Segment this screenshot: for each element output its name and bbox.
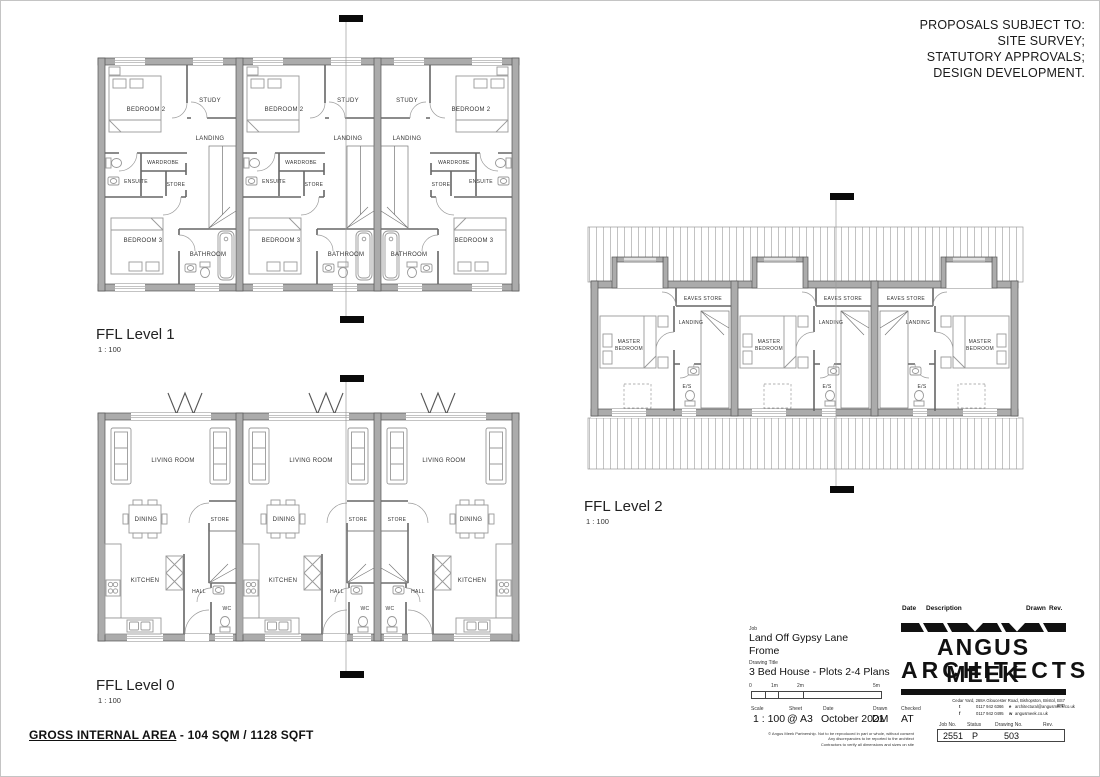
gross-internal-area: GROSS INTERNAL AREA - 104 SQM / 1128 SQF… bbox=[29, 728, 314, 742]
room-label: WC bbox=[223, 606, 232, 612]
proposals-notice: PROPOSALS SUBJECT TO: SITE SURVEY; STATU… bbox=[920, 17, 1085, 81]
scalebar-tick: 2m bbox=[797, 683, 804, 689]
email-label: e bbox=[1009, 704, 1011, 709]
drawing-sheet: PROPOSALS SUBJECT TO: SITE SURVEY; STATU… bbox=[0, 0, 1100, 777]
tel-value: 0117 942 6366 bbox=[976, 704, 1004, 709]
room-label: LANDING bbox=[906, 320, 930, 326]
notice-line: SITE SURVEY; bbox=[920, 33, 1085, 49]
room-label: LIVING ROOM bbox=[422, 458, 465, 464]
room-label: LANDING bbox=[679, 320, 703, 326]
date-label: Date bbox=[823, 706, 834, 712]
plan-title-level2: FFL Level 2 bbox=[584, 498, 663, 515]
room-label: WARDROBE bbox=[285, 160, 317, 166]
room-label: BEDROOM bbox=[615, 346, 643, 352]
fax-value: 0117 942 0495 bbox=[976, 711, 1004, 716]
room-label: BEDROOM 3 bbox=[455, 238, 494, 244]
room-label: STORE bbox=[305, 182, 324, 188]
room-label: BEDROOM 3 bbox=[124, 238, 163, 244]
room-label: EAVES STORE bbox=[684, 296, 722, 302]
room-label: EAVES STORE bbox=[887, 296, 925, 302]
room-label: WARDROBE bbox=[147, 160, 179, 166]
room-label: STORE bbox=[349, 517, 368, 523]
floor-plan-level-0: LIVING ROOM DINING STORE KITCHEN HALL WC… bbox=[94, 369, 528, 699]
scalebar-tick: 5m bbox=[873, 683, 880, 689]
room-label: HALL bbox=[192, 589, 206, 595]
room-label: KITCHEN bbox=[458, 578, 486, 584]
room-label: BEDROOM 2 bbox=[452, 107, 491, 113]
plan-title-level0: FFL Level 0 bbox=[96, 677, 175, 694]
room-label: LANDING bbox=[334, 136, 363, 142]
room-label: MASTER bbox=[758, 339, 781, 345]
email-value: architectural@angusmeek.co.uk bbox=[1015, 704, 1075, 709]
room-label: WARDROBE bbox=[438, 160, 470, 166]
room-label: DINING bbox=[273, 517, 296, 523]
break-symbols bbox=[168, 393, 455, 414]
firm-name-line2: ARCHITECTS bbox=[901, 657, 1066, 684]
checked-value: AT bbox=[901, 713, 914, 725]
scale-bar bbox=[751, 691, 882, 699]
floor-plan-level-2: EAVES STORE LANDING MASTER BEDROOM E/S E… bbox=[579, 189, 1031, 509]
drawn-value: DM bbox=[872, 713, 888, 725]
room-label: BEDROOM 2 bbox=[127, 107, 166, 113]
drawing-title: 3 Bed House - Plots 2-4 Plans bbox=[749, 666, 890, 678]
plan-scale-level1: 1 : 100 bbox=[98, 345, 121, 354]
job-no-label: Job No. bbox=[939, 722, 956, 728]
room-label: LANDING bbox=[819, 320, 843, 326]
scalebar-tick: 0 bbox=[749, 683, 752, 689]
room-label: BEDROOM bbox=[755, 346, 783, 352]
drawing-no-label: Drawing No. bbox=[995, 722, 1023, 728]
room-label: STUDY bbox=[337, 98, 359, 104]
room-label: E/S bbox=[683, 384, 692, 390]
sheet-label: Sheet bbox=[789, 706, 802, 712]
job-no-value: 2551 bbox=[943, 731, 963, 741]
room-label: BATHROOM bbox=[190, 252, 227, 258]
checked-label: Checked bbox=[901, 706, 921, 712]
room-label: BEDROOM 2 bbox=[265, 107, 304, 113]
plan-scale-level0: 1 : 100 bbox=[98, 696, 121, 705]
rev-header-rev: Rev. bbox=[1049, 605, 1062, 612]
room-label: STORE bbox=[388, 517, 407, 523]
logo-divider-bar bbox=[901, 689, 1066, 695]
room-label: LIVING ROOM bbox=[289, 458, 332, 464]
room-label: WC bbox=[386, 606, 395, 612]
room-label: HALL bbox=[411, 589, 425, 595]
room-label: STORE bbox=[167, 182, 186, 188]
room-label: BATHROOM bbox=[391, 252, 428, 258]
room-label: ENSUITE bbox=[124, 179, 148, 185]
drawn-label: Drawn bbox=[873, 706, 887, 712]
room-label: KITCHEN bbox=[269, 578, 297, 584]
copyright-line: Contractors to verify all dimensions and… bbox=[746, 742, 914, 747]
status-label: Status bbox=[967, 722, 981, 728]
room-label: WC bbox=[361, 606, 370, 612]
room-label: STUDY bbox=[199, 98, 221, 104]
fax-label: f bbox=[959, 711, 960, 716]
room-label: E/S bbox=[823, 384, 832, 390]
room-label: E/S bbox=[918, 384, 927, 390]
notice-line: STATUTORY APPROVALS; bbox=[920, 49, 1085, 65]
notice-line: DESIGN DEVELOPMENT. bbox=[920, 65, 1085, 81]
gross-area-value: 104 SQM / 1128 SQFT bbox=[188, 728, 314, 742]
room-label: EAVES STORE bbox=[824, 296, 862, 302]
room-label: MASTER bbox=[969, 339, 992, 345]
angus-meek-logo-mark bbox=[901, 623, 1066, 633]
web-label: w bbox=[1009, 711, 1012, 716]
gross-area-separator: - bbox=[180, 728, 184, 742]
gross-area-label: GROSS INTERNAL AREA bbox=[29, 728, 176, 742]
tel-label: t bbox=[959, 704, 960, 709]
sheet-value: @ A3 bbox=[787, 713, 813, 725]
room-label: STORE bbox=[432, 182, 451, 188]
floor-plan-level-1: BEDROOM 2 STUDY LANDING WARDROBE ENSUITE… bbox=[94, 11, 528, 341]
status-value: P bbox=[972, 731, 978, 741]
room-label: ENSUITE bbox=[469, 179, 493, 185]
web-value: angusmeek.co.uk bbox=[1015, 711, 1048, 716]
plan-title-level1: FFL Level 1 bbox=[96, 326, 175, 343]
notice-line: PROPOSALS SUBJECT TO: bbox=[920, 17, 1085, 33]
room-label: BEDROOM 3 bbox=[262, 238, 301, 244]
job-location: Frome bbox=[749, 645, 779, 657]
room-label: HALL bbox=[330, 589, 344, 595]
room-label: KITCHEN bbox=[131, 578, 159, 584]
rev-header-date: Date bbox=[902, 605, 916, 612]
room-label: STUDY bbox=[396, 98, 418, 104]
rev-header-drawn: Drawn bbox=[1026, 605, 1046, 612]
job-name: Land Off Gypsy Lane bbox=[749, 632, 848, 644]
copyright-note: © Angus Meek Partnership. Not to be repr… bbox=[746, 731, 914, 747]
scalebar-tick: 1m bbox=[771, 683, 778, 689]
room-label: MASTER bbox=[618, 339, 641, 345]
room-label: LANDING bbox=[393, 136, 422, 142]
room-label: BEDROOM bbox=[966, 346, 994, 352]
room-label: STORE bbox=[211, 517, 230, 523]
drawing-no-value: 503 bbox=[1004, 731, 1019, 741]
room-label: LANDING bbox=[196, 136, 225, 142]
room-label: ENSUITE bbox=[262, 179, 286, 185]
rev-header-description: Description bbox=[926, 605, 962, 612]
scale-value: 1 : 100 bbox=[753, 713, 785, 725]
room-label: DINING bbox=[135, 517, 158, 523]
room-label: LIVING ROOM bbox=[151, 458, 194, 464]
scale-label: Scale bbox=[751, 706, 764, 712]
room-label: DINING bbox=[460, 517, 483, 523]
rev-no-label: Rev. bbox=[1043, 722, 1053, 728]
plan-scale-level2: 1 : 100 bbox=[586, 517, 609, 526]
